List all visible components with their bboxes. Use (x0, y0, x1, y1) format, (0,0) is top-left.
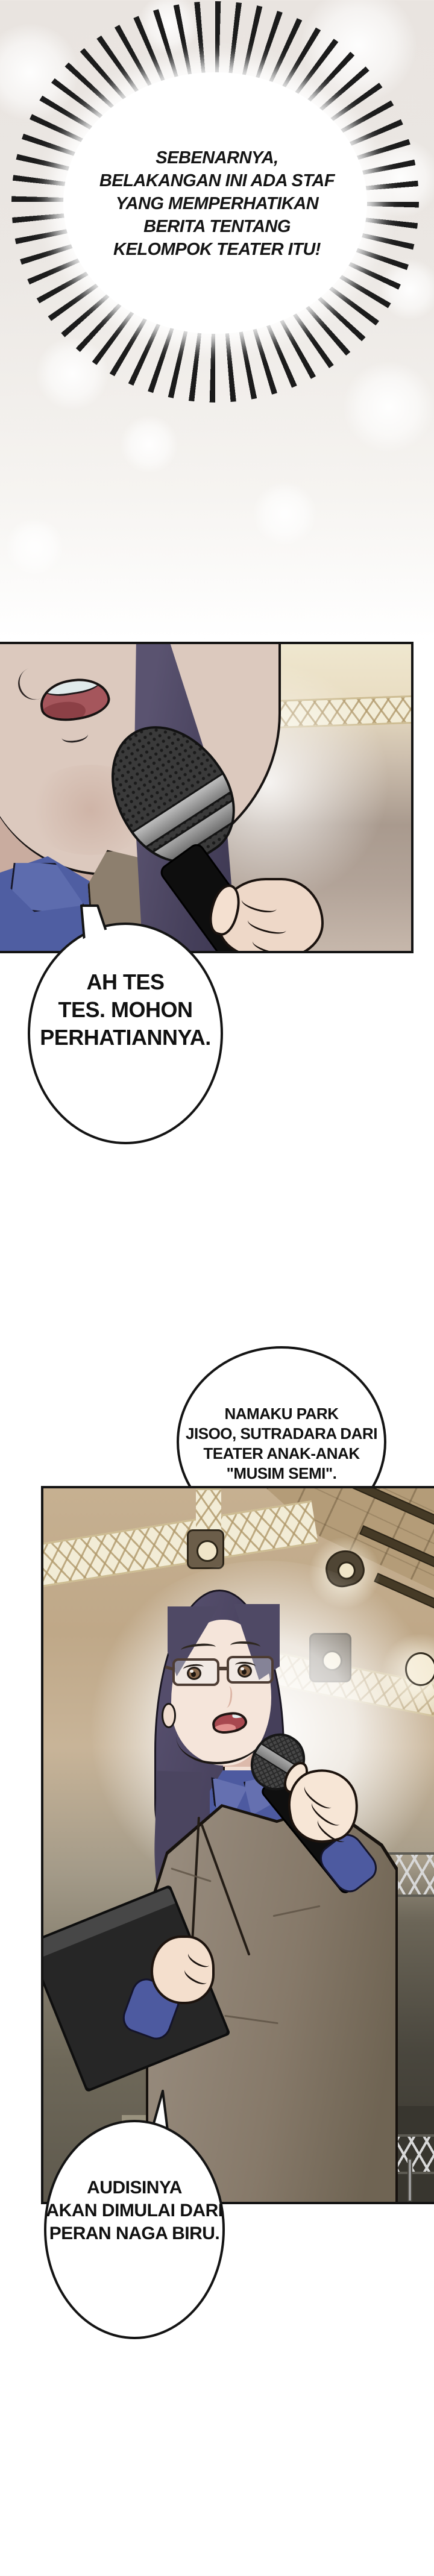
speech-text-mic-test: AH TES TES. MOHON PERHATIANNYA. (35, 968, 216, 1051)
glasses-bridge (218, 1667, 228, 1670)
bokeh-light (253, 482, 316, 545)
speech-text-introduction: NAMAKU PARK JISOO, SUTRADARA DARI TEATER… (179, 1404, 384, 1484)
spotlight-fixture (187, 1529, 224, 1569)
bokeh-light (121, 416, 178, 473)
director-fist (151, 1935, 215, 2004)
stage-pole (407, 2158, 412, 2202)
speech-text-audition: AUDISINYA AKAN DIMULAI DARI PERAN NAGA B… (44, 2176, 225, 2245)
webtoon-page: { "page": { "kind": "webtoon comic page"… (0, 0, 434, 2576)
bokeh-light (344, 362, 434, 452)
director-ear (162, 1703, 176, 1728)
spotlight-lens (197, 1540, 218, 1562)
burst-caption-text: SEBENARNYA, BELAKANGAN INI ADA STAF YANG… (69, 146, 365, 261)
bokeh-light (6, 518, 63, 575)
director-teeth (232, 1712, 245, 1719)
